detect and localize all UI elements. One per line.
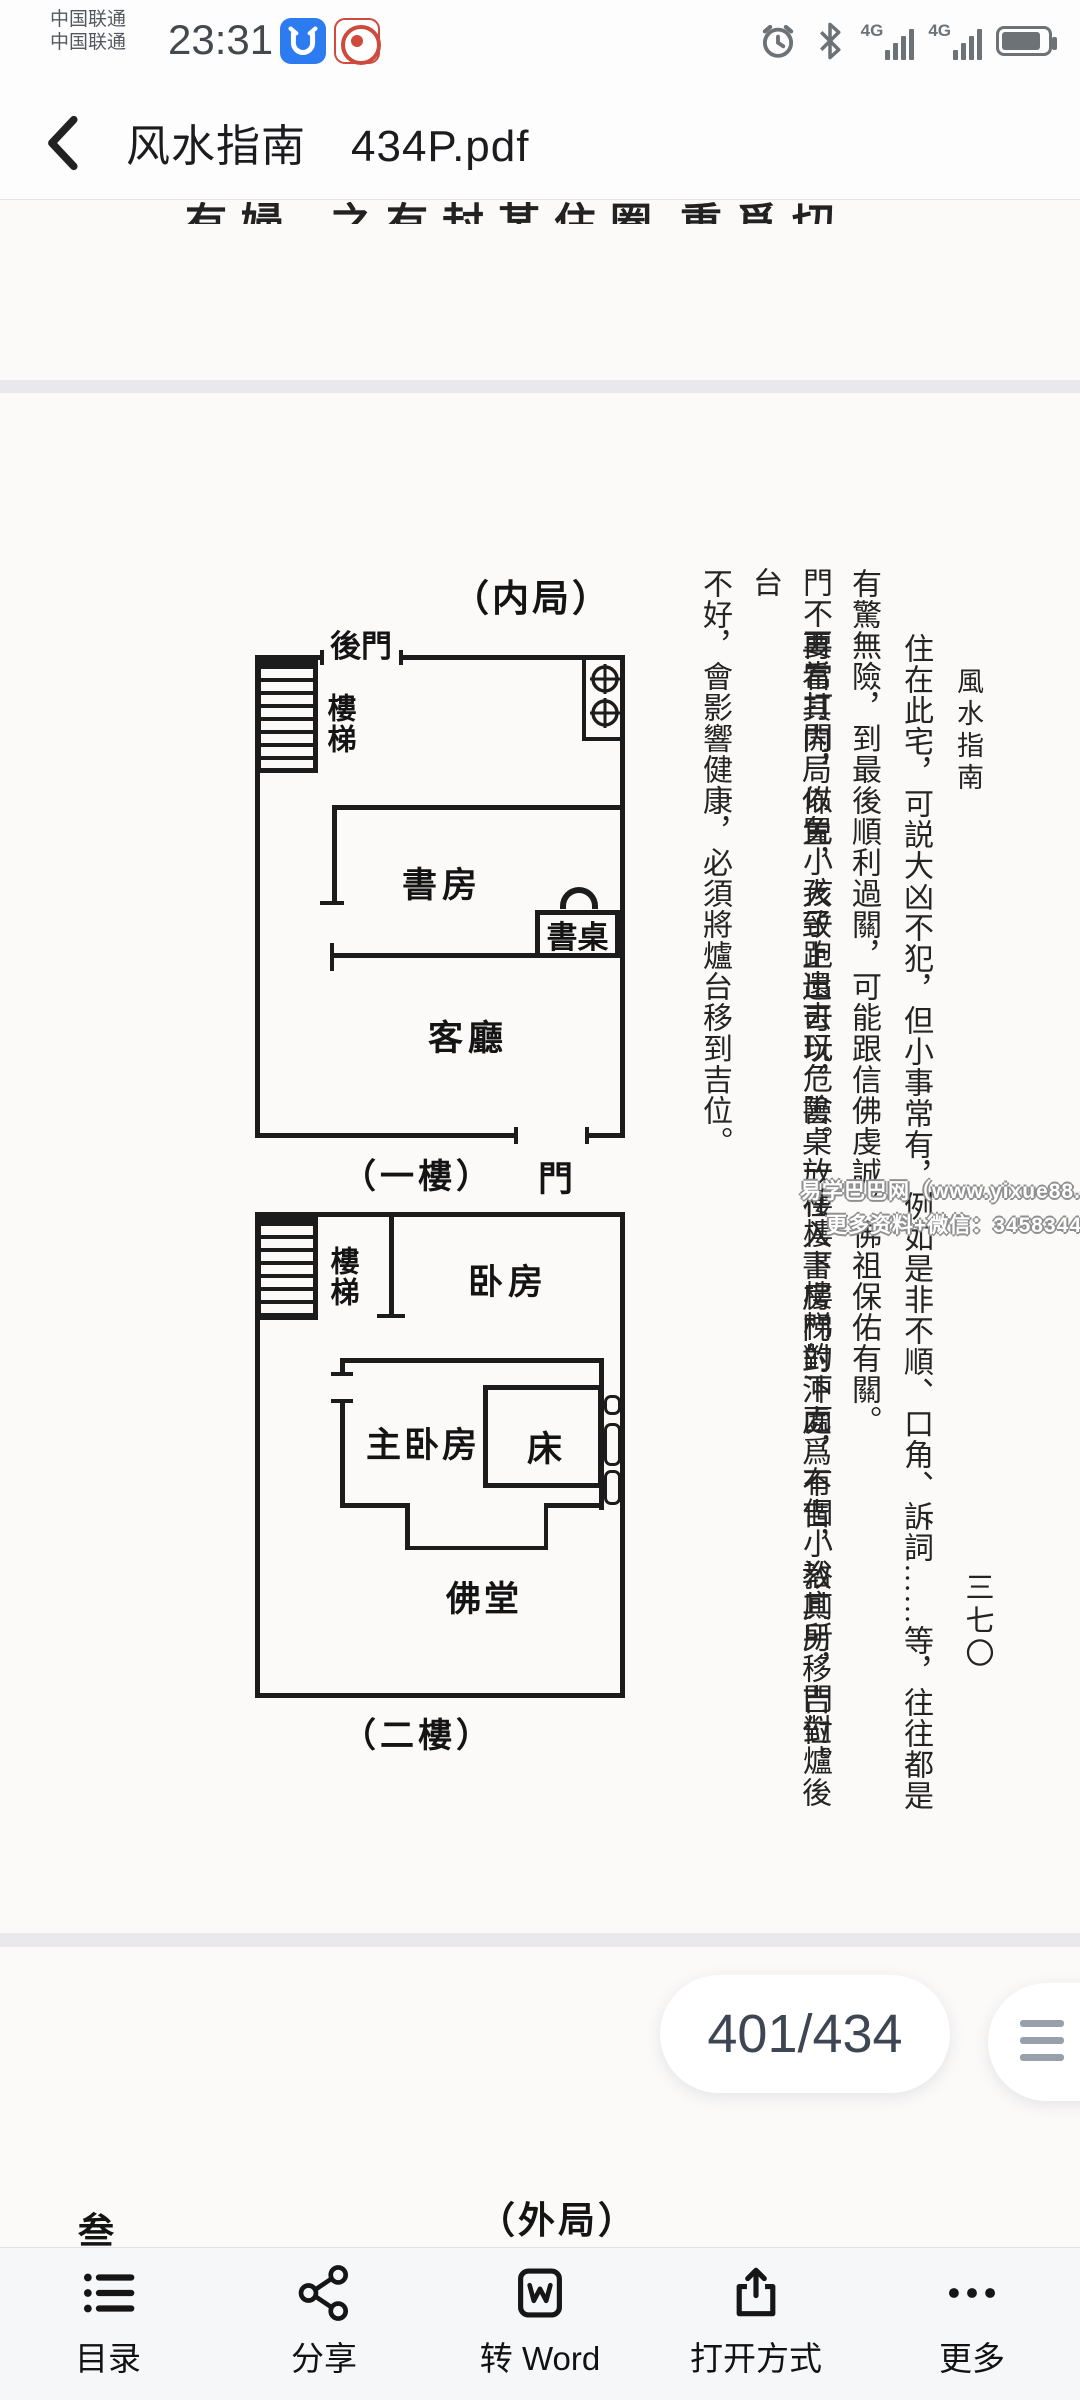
stairs-icon [256,1217,318,1320]
pdf-page-previous: 有婦 之有封某住圈 重爲切 [0,200,1080,380]
door-jamb [514,1127,518,1144]
signal-bars-1 [885,26,914,60]
door-jamb [320,650,324,665]
wall [332,805,625,810]
clipped-text-row: 有婦 之有封某住圈 重爲切 [0,202,1080,224]
floor1-caption: （一樓） [342,1149,494,1198]
toolbar-label: 转 Word [480,2332,600,2380]
study-label: 書房 [402,857,482,908]
wall-tick [331,1372,353,1376]
carrier-2: 中国联通 [50,31,126,54]
page-fragment: 之有封某住圈 [330,202,666,224]
wall [255,1133,517,1138]
next-section-title: （外局） [478,2190,638,2244]
wall [340,1358,603,1363]
carrier-1: 中国联通 [50,8,126,31]
book-running-header: 風水指南 [949,667,988,795]
toolbar-item-open-with[interactable]: 打开方式 [648,2248,864,2400]
wall [332,953,535,958]
signal-sim1: 4G [861,22,915,60]
wall [587,1133,625,1138]
watermark-line-2: 更多资料+微信：3458344044 [826,1209,1080,1239]
wall [340,1399,345,1505]
bluetooth-icon [813,20,847,62]
door-jamb [399,650,403,665]
altar-label: 佛堂 [446,1571,522,1622]
bed-label: 床 [527,1421,562,1472]
share-icon [293,2262,355,2324]
carrier-labels: 中国联通 中国联通 [50,8,126,54]
list-line [1020,2037,1064,2044]
stove-burner-icon [588,696,622,730]
more-dots-icon [941,2262,1003,2324]
page-fragment: 重爲切 [680,202,848,224]
altar-nook-wall [544,1503,548,1550]
toolbar-item-more[interactable]: 更多 [864,2248,1080,2400]
phone-screen: 中国联通 中国联通 23:31 4G [0,0,1080,2400]
body-column-4: 門不要常打開，以免小孩子跑出去玩危險。一樓樓下樓梯的下面，有個小浴廁所，門對爐台 [739,567,839,1777]
pillow-icon [604,1470,621,1505]
wall [548,1503,603,1508]
pdf-page-current: （内局） [0,393,1080,1933]
toolbar-label: 更多 [939,2332,1005,2380]
bull-glyph-icon [280,18,326,64]
bedroom-label: 卧房 [468,1254,548,1305]
chair-icon [560,887,598,909]
wall [332,805,337,905]
toolbar-label: 目录 [75,2332,141,2380]
living-room-label: 客廳 [428,1010,508,1061]
altar-nook-wall [405,1546,548,1550]
wall [340,1503,405,1508]
stove-burner-icon [588,662,622,696]
toolbar-label: 打开方式 [690,2332,822,2380]
toolbar-item-toc[interactable]: 目录 [0,2248,216,2400]
stairs-label: 樓梯 [321,1246,363,1308]
bottom-toolbar: 目录 分享 转 Word 打开方式 [0,2247,1080,2400]
signal-bars-2 [953,26,982,60]
wall [389,1217,394,1318]
notification-app-icon-red [334,18,380,64]
master-bedroom-label: 主卧房 [366,1417,480,1468]
word-doc-icon [509,2262,571,2324]
desk-label: 書桌 [547,912,609,957]
page-indicator-pill[interactable]: 401/434 [660,1975,950,2093]
alarm-icon [757,20,799,62]
status-bar: 中国联通 中国联通 23:31 4G [0,0,1080,90]
desk-box: 書桌 [535,910,620,958]
stove-outline [582,660,586,741]
wall-tick [320,901,344,905]
page-number-chinese: 三七〇 [956,1572,998,1671]
door-label: 門 [538,1151,573,1202]
back-door-label: 後門 [330,621,392,666]
list-line [1020,2020,1064,2027]
body-column-2: 有驚無險，到最後順利過關，可能跟信佛虔誠，佛祖保佑有關。 [838,568,888,1778]
stove-outline [582,737,625,741]
battery-icon [996,26,1052,56]
back-icon[interactable] [30,108,100,178]
page-fragment: 有婦 [185,202,297,224]
toolbar-item-convert-word[interactable]: 转 Word [432,2248,648,2400]
status-icons: 4G 4G [757,20,1052,62]
altar-nook-wall [405,1503,410,1550]
stairs-icon [256,660,318,773]
open-with-icon [725,2262,787,2324]
document-title: 风水指南 434P.pdf [126,110,529,174]
network-type-2: 4G [928,22,951,39]
toc-list-icon [77,2262,139,2324]
wall [255,1693,625,1698]
notification-app-icon-blue [280,18,326,64]
wall [400,655,625,660]
toolbar-item-share[interactable]: 分享 [216,2248,432,2400]
door-jamb [585,1127,589,1144]
status-clock: 23:31 [168,16,273,64]
list-line [1020,2054,1064,2061]
page-indicator-label: 401/434 [707,2003,902,2065]
stairs-label: 樓梯 [318,693,360,755]
network-type-1: 4G [861,22,884,39]
signal-sim2: 4G [928,22,982,60]
section-title: （内局） [452,568,612,622]
wall-tick [377,1314,405,1318]
pdf-viewport[interactable]: 有婦 之有封某住圈 重爲切 （内局） [0,200,1080,2247]
body-column-5: 不好，會影響健康，必須將爐台移到吉位。 [689,568,739,1778]
watermark-line-1: 易学巴巴网（www.yixue88.cn [800,1175,1080,1205]
toolbar-label: 分享 [291,2332,357,2380]
pillow-icon [604,1423,621,1466]
floor2-caption: （二樓） [342,1708,494,1757]
pillow-icon [604,1395,621,1415]
app-header: 风水指南 434P.pdf [0,90,1080,200]
